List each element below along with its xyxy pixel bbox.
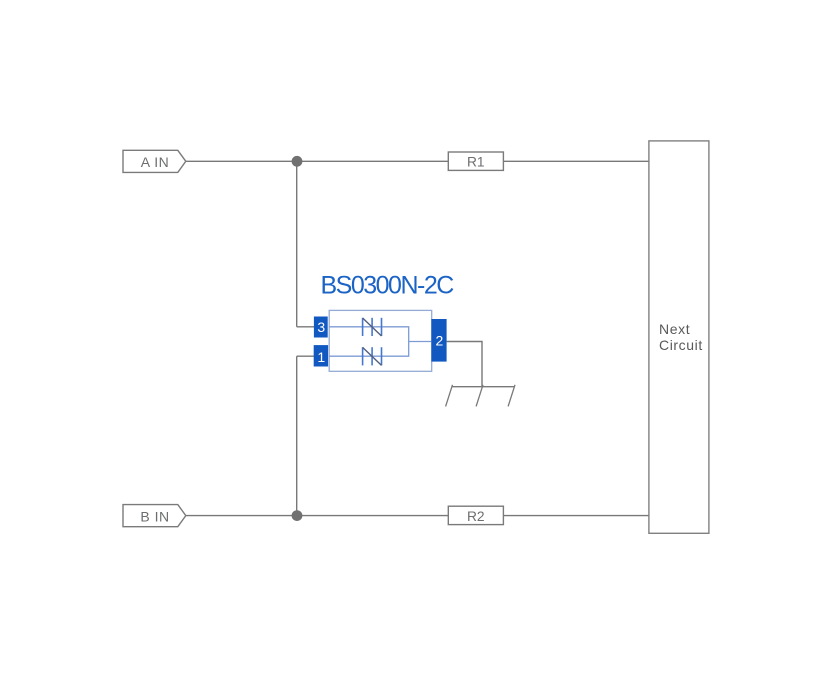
svg-text:2: 2 xyxy=(436,332,444,348)
svg-text:R2: R2 xyxy=(467,509,485,524)
svg-text:B IN: B IN xyxy=(140,508,169,524)
svg-text:BS0300N-2C: BS0300N-2C xyxy=(321,272,455,300)
svg-text:R1: R1 xyxy=(467,155,485,170)
svg-text:1: 1 xyxy=(317,349,325,365)
svg-text:3: 3 xyxy=(317,319,325,335)
svg-text:Next: Next xyxy=(659,321,690,337)
svg-text:A IN: A IN xyxy=(141,154,169,170)
svg-text:Circuit: Circuit xyxy=(659,337,703,353)
